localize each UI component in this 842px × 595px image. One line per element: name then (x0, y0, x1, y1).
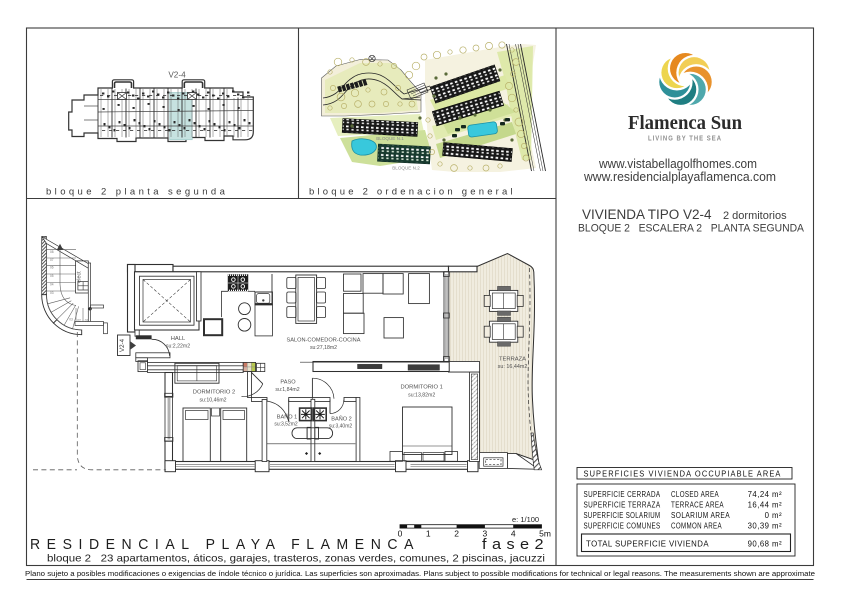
svg-text:COMMON AREA: COMMON AREA (671, 522, 722, 531)
svg-text:RESIDENCIAL PLAYA FLAMENCA: RESIDENCIAL PLAYA FLAMENCA (30, 536, 420, 553)
svg-text:su: 16,44m2: su: 16,44m2 (498, 364, 528, 370)
svg-text:SUPERFICIE TERRAZA: SUPERFICIE TERRAZA (584, 501, 661, 510)
svg-text:su:13,82m2: su:13,82m2 (408, 393, 435, 399)
svg-text:su:10,46m2: su:10,46m2 (199, 398, 226, 404)
svg-text:03: 03 (50, 291, 54, 295)
svg-text:08: 08 (50, 250, 54, 254)
svg-text:SUPERFICIE SOLARIUM: SUPERFICIE SOLARIUM (584, 511, 661, 520)
svg-text:su:3,40m2: su:3,40m2 (329, 424, 353, 430)
svg-text:5m: 5m (539, 529, 551, 539)
svg-text:elect: elect (77, 271, 83, 283)
svg-text:su:2,22m2: su:2,22m2 (166, 344, 190, 350)
svg-text:TERRAZA: TERRAZA (499, 357, 526, 363)
svg-text:bloque 2 planta segunda: bloque 2 planta segunda (46, 187, 228, 198)
svg-text:0: 0 (398, 529, 403, 539)
svg-text:2: 2 (454, 529, 459, 539)
svg-text:SUPERFICIES VIVIENDA OCCUPIA: SUPERFICIES VIVIENDA OCCUPIABLE AREA (584, 470, 782, 479)
svg-text:3: 3 (483, 529, 488, 539)
svg-text:www.residencialplayaflamenca.c: www.residencialplayaflamenca.com (583, 169, 776, 184)
svg-text:V2-4: V2-4 (168, 71, 186, 80)
svg-text:90,68 m²: 90,68 m² (748, 540, 782, 549)
svg-text:74,24 m²: 74,24 m² (748, 490, 782, 499)
svg-text:30,39 m²: 30,39 m² (748, 522, 782, 531)
svg-text:SALON-COMEDOR-COCINA: SALON-COMEDOR-COCINA (287, 338, 361, 344)
svg-text:Flamenca Sun: Flamenca Sun (628, 112, 743, 134)
svg-text:su:3,52m2: su:3,52m2 (274, 422, 298, 428)
svg-text:16,44 m²: 16,44 m² (748, 501, 782, 510)
svg-text:bloque 2 23 apartamentos, át: bloque 2 23 apartamentos, áticos, garaje… (47, 554, 545, 565)
svg-text:TERRACE AREA: TERRACE AREA (671, 501, 724, 510)
svg-text:V2-4: V2-4 (119, 338, 126, 352)
svg-text:VIVIENDA TIPO V2-4: VIVIENDA TIPO V2-4 (582, 207, 712, 222)
svg-text:06: 06 (50, 266, 54, 270)
svg-text:LIVING BY THE SEA: LIVING BY THE SEA (648, 136, 722, 143)
svg-text:su:1,84m2: su:1,84m2 (275, 387, 299, 393)
svg-text:1: 1 (426, 529, 431, 539)
svg-text:fase2: fase2 (482, 536, 549, 553)
svg-text:HALL: HALL (171, 336, 186, 342)
svg-text:DORMITORIO 1: DORMITORIO 1 (400, 385, 442, 391)
svg-text:SUPERFICIE COMUNES: SUPERFICIE COMUNES (584, 522, 661, 531)
svg-text:bloque 2 ordenacion general: bloque 2 ordenacion general (309, 187, 516, 198)
svg-text:BLOQUE 2 ESCALERA 2 PLANTA: BLOQUE 2 ESCALERA 2 PLANTA SEGUNDA (578, 223, 805, 235)
svg-text:03: 03 (69, 318, 73, 322)
svg-text:Plano sujeto a posibles modifi: Plano sujeto a posibles modificaciones o… (25, 571, 815, 578)
svg-text:TOTAL SUPERFICIE VIVIENDA: TOTAL SUPERFICIE VIVIENDA (586, 540, 709, 549)
svg-text:BLOQUE N.2: BLOQUE N.2 (392, 166, 420, 171)
svg-text:su:27,18m2: su:27,18m2 (310, 345, 337, 351)
svg-text:05: 05 (50, 274, 54, 278)
svg-text:BLOQUE N.1: BLOQUE N.1 (376, 136, 404, 141)
svg-text:CLOSED AREA: CLOSED AREA (671, 490, 719, 499)
svg-text:BAÑO 2: BAÑO 2 (331, 416, 352, 423)
svg-text:04: 04 (50, 283, 54, 287)
svg-text:e: 1/100: e: 1/100 (512, 515, 539, 524)
svg-text:4: 4 (511, 529, 516, 539)
svg-text:SOLARIUM AREA: SOLARIUM AREA (671, 511, 730, 520)
svg-text:2 dormitorios: 2 dormitorios (723, 210, 787, 222)
svg-text:PASO: PASO (280, 380, 296, 386)
svg-text:SUPERFICIE CERRADA: SUPERFICIE CERRADA (584, 490, 661, 499)
svg-text:DORMITORIO 2: DORMITORIO 2 (193, 390, 235, 396)
svg-text:07: 07 (50, 258, 54, 262)
svg-text:0 m²: 0 m² (765, 511, 782, 520)
